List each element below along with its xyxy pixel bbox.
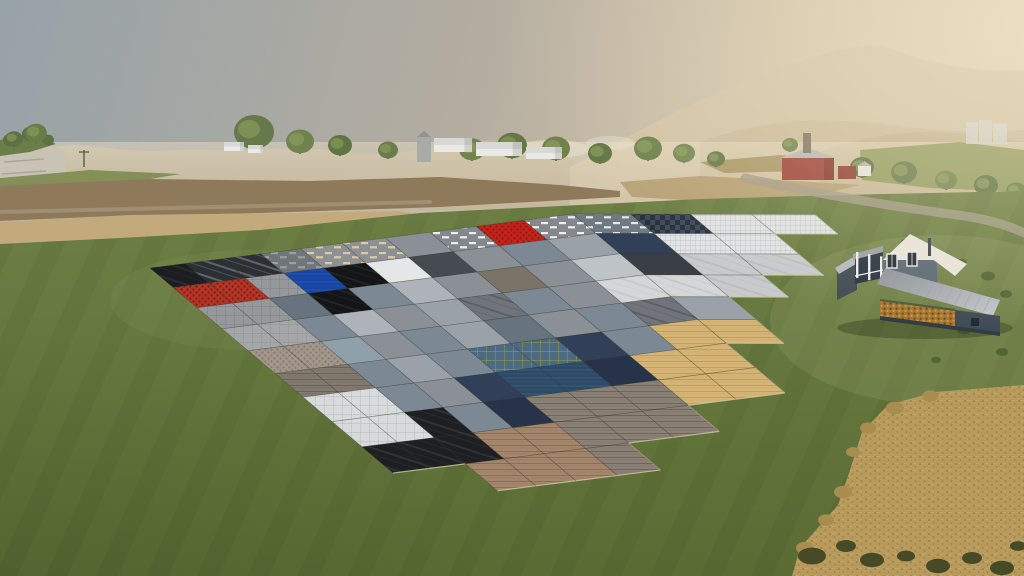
shed-shade xyxy=(260,145,263,153)
tree-highlight xyxy=(637,140,652,153)
dry-bush xyxy=(962,552,982,564)
shed-shade xyxy=(464,138,472,152)
wheat-edge-clump xyxy=(834,486,852,499)
barn-annex xyxy=(838,166,856,179)
tree-highlight xyxy=(380,144,391,153)
far-silo xyxy=(993,123,1007,144)
tree-highlight xyxy=(976,178,989,189)
dry-bush xyxy=(836,540,856,552)
barn-shade xyxy=(824,158,834,180)
bush xyxy=(996,348,1008,356)
tree-highlight xyxy=(330,138,343,149)
tree-highlight xyxy=(238,120,260,138)
dry-bush xyxy=(926,559,950,573)
right-wing-window xyxy=(971,318,979,326)
landscape xyxy=(0,0,1024,576)
tree-highlight xyxy=(27,127,39,137)
porch-post xyxy=(868,254,870,280)
tree-highlight xyxy=(675,147,687,157)
game-viewport[interactable] xyxy=(0,0,1024,576)
grain-elevator xyxy=(417,137,431,162)
dry-bush xyxy=(990,561,1014,575)
tree-highlight xyxy=(289,133,304,146)
tree-highlight xyxy=(937,174,949,184)
tree-highlight xyxy=(709,154,719,162)
shed-shade xyxy=(555,147,562,159)
bush xyxy=(931,357,941,364)
tree-highlight xyxy=(7,134,17,142)
bush xyxy=(981,271,995,280)
far-silo xyxy=(979,120,992,144)
stovepipe-chimney xyxy=(928,238,931,256)
shed-shade xyxy=(513,142,522,156)
porch-post xyxy=(856,252,858,278)
wheat-edge-clump xyxy=(922,390,938,401)
dry-bush xyxy=(897,551,915,562)
wheat-edge-clump xyxy=(846,447,860,457)
wheat-edge-clump xyxy=(886,402,904,415)
dry-bush xyxy=(798,548,826,565)
shed-shade xyxy=(240,142,244,151)
elevator-cap xyxy=(417,131,431,137)
wheat-edge-clump xyxy=(860,422,876,433)
far-silo xyxy=(966,122,978,144)
bush xyxy=(1000,290,1012,298)
wheat-edge-clump xyxy=(818,514,834,525)
mine-tower xyxy=(803,133,811,153)
white-house xyxy=(858,166,871,176)
tree-highlight xyxy=(590,146,603,157)
dry-bush xyxy=(860,553,884,567)
tree-highlight xyxy=(894,165,908,177)
tree-highlight xyxy=(784,140,793,147)
